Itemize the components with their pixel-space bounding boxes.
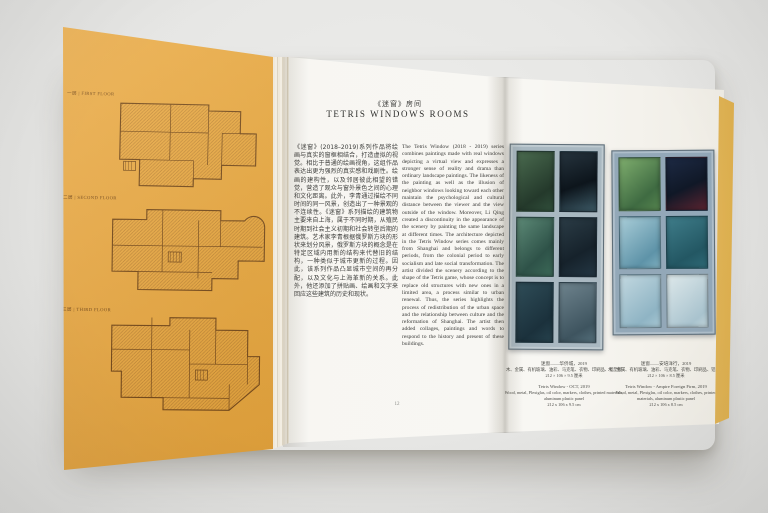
window-pane [666, 274, 708, 328]
window-pane [665, 157, 707, 211]
chapter-title-english: TETRIS WINDOWS ROOMS [293, 109, 503, 119]
artwork-tetris-window-oct [508, 144, 604, 351]
window-pane [559, 151, 597, 212]
body-text-english: The Tetris Window (2018 - 2019) series c… [402, 144, 504, 348]
book-spread-photo: 一层 | FIRST FLOOR 二层 | SECOND FLOOR 三层 | … [0, 0, 768, 513]
window-pane [558, 282, 596, 343]
caption-artwork-2: 迷窗——安培洋行，2019 木、金属、有机玻璃、油彩、马克笔、衣物、印刷品、铝塑… [608, 361, 724, 408]
caption-materials-en: Wood, metal, Plexiglas, oil color, marke… [608, 390, 724, 402]
page-number: 12 [387, 402, 407, 407]
caption-dims-en: 212 x 106 x 9.5 cm [503, 402, 625, 408]
window-pane [666, 215, 708, 269]
caption-artwork-1: 迷窗——华侨城，2019 木、金属、有机玻璃、油彩、马克笔、衣物、印刷品、铝塑板… [503, 361, 625, 408]
window-pane [559, 217, 597, 278]
window-pane [516, 216, 554, 277]
body-text-chinese: 《迷窗》(2018–2019)系列作品将绘画与真实的窗框相结合，打造虚拟的视觉。… [294, 144, 398, 299]
window-pane [515, 282, 553, 343]
artwork-tetris-window-ampire [611, 150, 715, 336]
caption-title-en: Tetris Window - Ampire Foreign Firm, 201… [608, 384, 724, 390]
window-panes-grid [515, 151, 597, 344]
window-panes-grid [618, 157, 708, 329]
window-pane [618, 157, 660, 211]
caption-dims-en: 212 x 106 x 8.5 cm [608, 402, 724, 408]
window-pane [516, 151, 554, 212]
window-pane [619, 216, 661, 270]
window-pane [619, 274, 661, 328]
caption-materials-en: Wood, metal, Plexiglas, oil color, marke… [503, 390, 625, 402]
chapter-title-chinese: 《迷窗》房间 [293, 99, 503, 109]
